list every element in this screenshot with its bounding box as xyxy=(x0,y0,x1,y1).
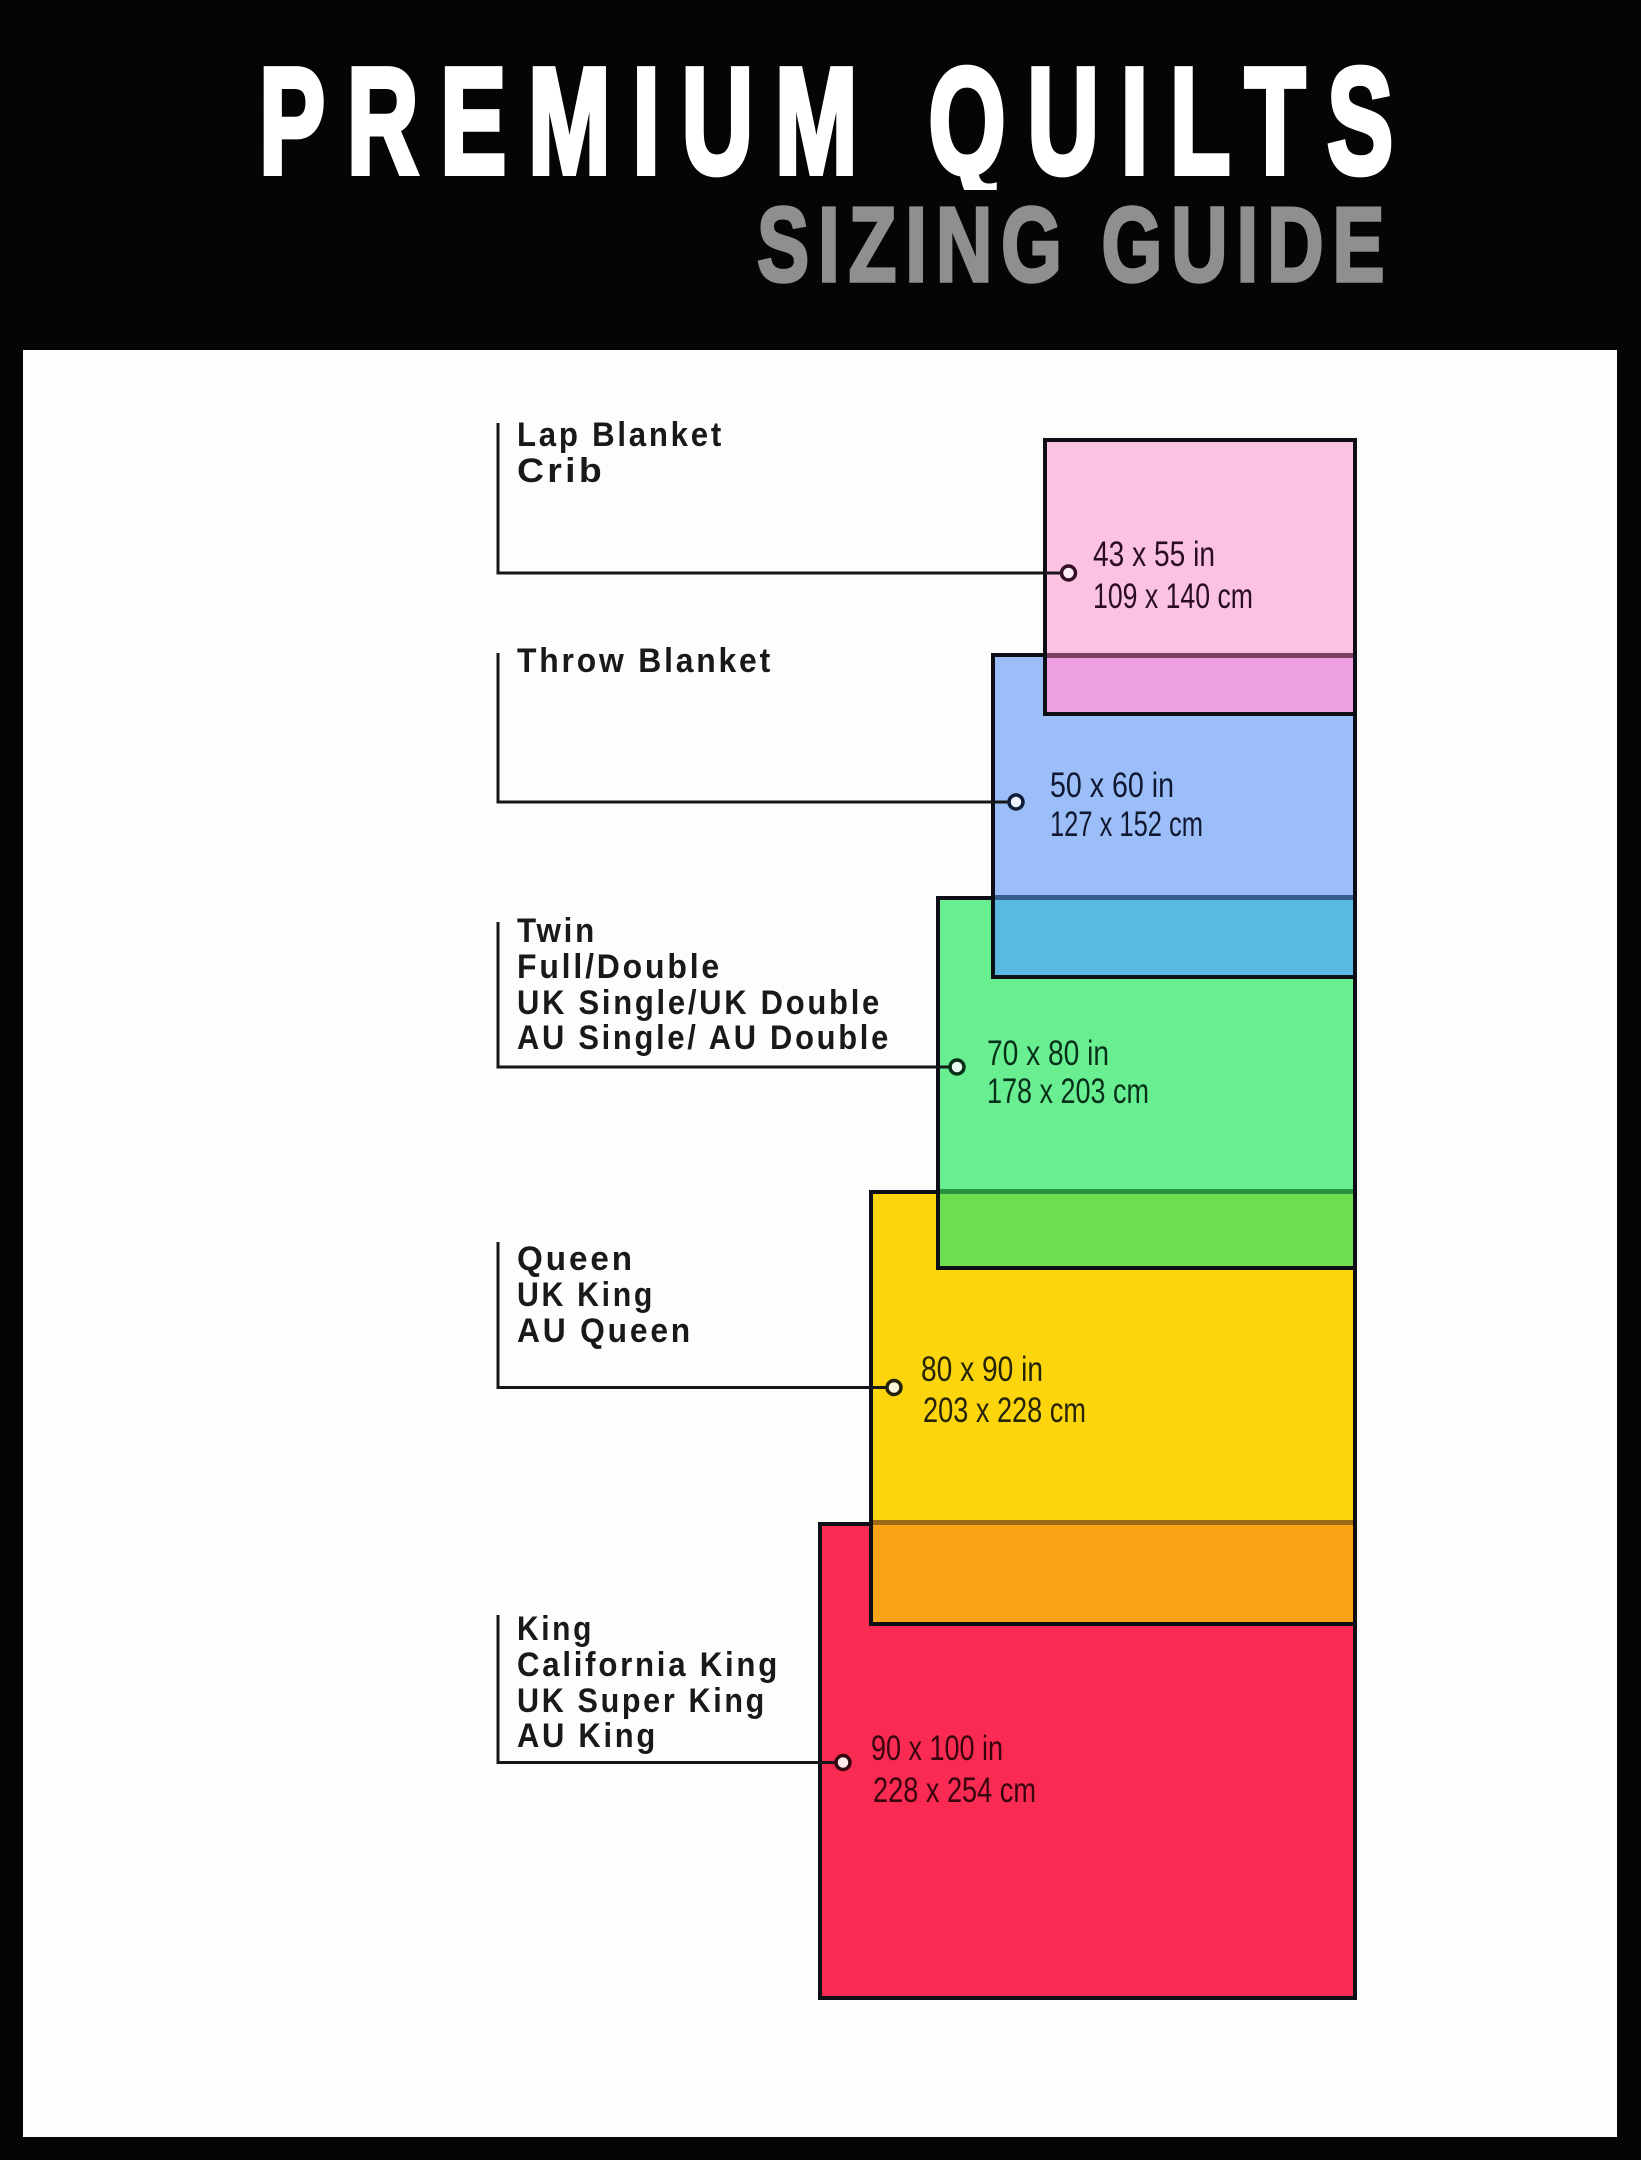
svg-text:SIZING GUIDE: SIZING GUIDE xyxy=(757,185,1393,303)
svg-text:PREMIUM QUILTS: PREMIUM QUILTS xyxy=(259,37,1415,206)
svg-text:King: King xyxy=(517,1610,594,1648)
svg-text:UK King: UK King xyxy=(517,1276,655,1314)
svg-text:AU Queen: AU Queen xyxy=(517,1312,693,1350)
svg-text:UK Single/UK Double: UK Single/UK Double xyxy=(517,984,882,1022)
svg-text:AU King: AU King xyxy=(517,1717,658,1755)
svg-text:Lap Blanket: Lap Blanket xyxy=(517,416,724,454)
svg-text:Full/Double: Full/Double xyxy=(517,948,722,986)
svg-text:90 x 100 in: 90 x 100 in xyxy=(871,1729,1003,1768)
svg-text:127 x 152 cm: 127 x 152 cm xyxy=(1050,805,1203,844)
svg-text:Crib: Crib xyxy=(517,452,605,490)
svg-text:Throw Blanket: Throw Blanket xyxy=(517,642,773,680)
svg-text:203 x 228 cm: 203 x 228 cm xyxy=(923,1391,1086,1430)
svg-text:UK Super King: UK Super King xyxy=(517,1682,767,1720)
svg-text:178 x 203 cm: 178 x 203 cm xyxy=(987,1072,1149,1111)
svg-text:Queen: Queen xyxy=(517,1240,635,1278)
svg-text:50 x 60 in: 50 x 60 in xyxy=(1050,766,1174,805)
svg-text:109 x 140 cm: 109 x 140 cm xyxy=(1093,577,1253,616)
svg-text:80 x 90 in: 80 x 90 in xyxy=(921,1350,1043,1389)
svg-text:California King: California King xyxy=(517,1646,780,1684)
svg-text:228 x 254 cm: 228 x 254 cm xyxy=(873,1771,1036,1810)
svg-text:43 x 55 in: 43 x 55 in xyxy=(1093,535,1215,574)
svg-text:70 x 80 in: 70 x 80 in xyxy=(987,1034,1109,1073)
svg-text:AU Single/ AU Double: AU Single/ AU Double xyxy=(517,1019,891,1057)
svg-text:Twin: Twin xyxy=(517,912,597,950)
